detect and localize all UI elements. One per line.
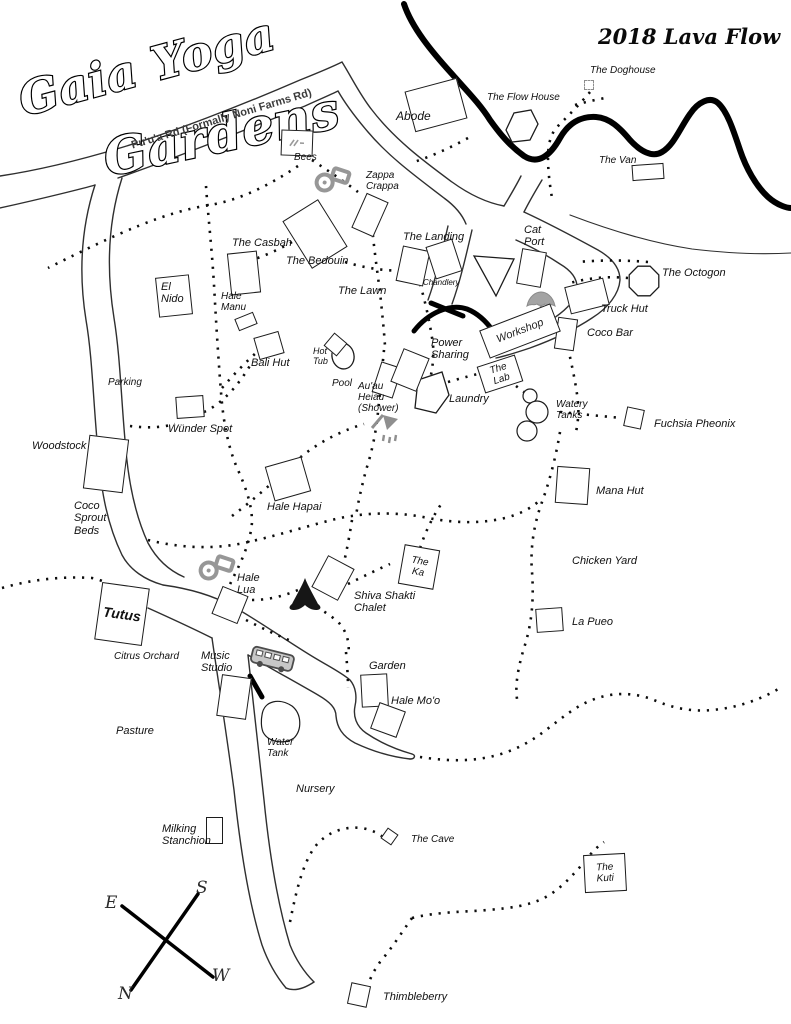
watery-tank-3 [517, 421, 537, 441]
label-hale-hapai: Hale Hapai [267, 501, 321, 513]
label-hale-lua: Hale Lua [237, 572, 260, 597]
label-bees: Bees [294, 152, 317, 163]
trail-west-edge-tutus [2, 577, 116, 590]
label-zappa-crappa: Zappa Crappa [366, 170, 399, 192]
bee-icon [288, 138, 306, 149]
compass-line-sn [131, 894, 198, 990]
label-hale-moo: Hale Mo'o [391, 695, 440, 707]
trail-kuti [412, 842, 604, 918]
garden-box [360, 673, 389, 707]
label-nursery: Nursery [296, 783, 335, 795]
trail-bottom-horizontal [420, 688, 780, 760]
trail-thimbleberry [370, 918, 412, 980]
la-pueo-box [535, 607, 564, 633]
label-pool: Pool [332, 378, 352, 389]
label-shiva-shakti: Shiva Shakti Chalet [354, 590, 415, 615]
trail-doghouse-east [575, 98, 605, 105]
label-chicken-yard: Chicken Yard [572, 555, 637, 567]
label-van: The Van [599, 155, 636, 166]
label-parking: Parking [108, 377, 142, 388]
tutus-label: Tutus [102, 603, 142, 624]
label-octogon: The Octogon [662, 267, 726, 279]
label-pasture: Pasture [116, 725, 154, 737]
puua-road-lower-edge-a [0, 185, 95, 208]
trail-network [2, 92, 780, 980]
label-casbah: The Casbah [232, 237, 292, 249]
toilet-icon-zappa [315, 164, 350, 197]
label-thimbleberry: Thimbleberry [383, 991, 447, 1003]
bus-icon [249, 646, 294, 675]
label-auau-heiau: Au'au Heiau (Shower) [358, 381, 399, 415]
toilet-icon-hale-lua [199, 552, 234, 585]
trail-garden-vertical [346, 652, 348, 688]
tutus-box: Tutus [94, 582, 150, 646]
label-doghouse: The Doghouse [590, 65, 656, 76]
label-bali-hut: Bali Hut [251, 357, 290, 369]
map-drawing-layer: Gaia Yoga Gardens [0, 0, 791, 1024]
trail-wunder-to-bali [204, 362, 252, 412]
label-coco-bar: Coco Bar [587, 327, 633, 339]
east-boundary-line [570, 215, 791, 254]
trail-big-south-loop [148, 500, 540, 547]
label-bedouin: The Bedouin [286, 255, 348, 267]
label-el-nido: El Nido [161, 281, 184, 306]
trail-chickenyard-vertical [516, 432, 560, 704]
central-road-south-edge-a [148, 608, 212, 638]
compass-letter-e: E [105, 893, 117, 913]
woodstock-box [83, 435, 129, 493]
label-truck-hut: Truck Hut [601, 303, 648, 315]
kuti-box: The Kuti [583, 853, 627, 893]
label-hale-manu: Hale Manu [221, 291, 246, 313]
label-cave: The Cave [411, 834, 454, 845]
label-chandlery: Chandlery [423, 279, 459, 288]
compass-letter-n: N [118, 984, 133, 1004]
trail-cave-loop [290, 828, 384, 922]
label-flow-house: The Flow House [487, 92, 560, 103]
label-lawn: The Lawn [338, 285, 386, 297]
label-woodstock: Woodstock [32, 440, 86, 452]
trail-ka-north [420, 500, 444, 548]
label-watery-tanks: Watery Tanks [556, 399, 588, 421]
label-garden: Garden [369, 660, 406, 672]
kuti-label: The Kuti [596, 862, 614, 885]
trail-shiva-to-garden [300, 600, 349, 656]
gaia-yoga-gardens-map: Gaia Yoga Gardens Workshop The Lab The K… [0, 0, 791, 1024]
octogon-shape [629, 266, 659, 296]
compass-letter-w: W [212, 966, 229, 986]
label-mana-hut: Mana Hut [596, 485, 644, 497]
the-ka-box: The Ka [398, 544, 440, 590]
road-network [0, 62, 791, 990]
trail-lua-southeast [246, 620, 294, 642]
label-citrus-orchard: Citrus Orchard [114, 651, 179, 662]
label-abode: Abode [396, 110, 431, 123]
lava-stub-edge-b [524, 180, 542, 212]
mana-hut-box [555, 466, 591, 505]
label-laundry: Laundry [449, 393, 489, 405]
label-wunder-spot: Wünder Spot [168, 423, 232, 435]
label-la-pueo: La Pueo [572, 616, 613, 628]
central-road-deadend-cap [410, 754, 414, 759]
compass-line-es [122, 906, 213, 977]
casbah-box [227, 251, 261, 296]
trail-bees-west [48, 166, 298, 268]
label-landing: The Landing [403, 231, 464, 243]
lava-stub-edge-a [504, 176, 521, 206]
label-milking-stanchion: Milking Stanchion [162, 823, 211, 848]
shower-icon [372, 415, 398, 443]
compass-letter-s: S [196, 878, 208, 898]
label-power-sharing: Power Sharing [431, 337, 469, 362]
south-road-end-cap [286, 982, 314, 990]
the-lab-label: The Lab [488, 361, 511, 387]
label-coco-sprout-beds: Coco Sprout Beds [74, 500, 106, 537]
flow-house-shape [506, 110, 538, 142]
music-studio-box [216, 674, 252, 720]
label-cat-port: Cat Port [524, 224, 544, 249]
doghouse-box [584, 80, 594, 90]
label-fuchsia-pheonix: Fuchsia Pheonix [654, 418, 735, 430]
watery-tank-2 [526, 401, 548, 423]
label-music-studio: Music Studio [201, 650, 232, 675]
water-tank-shape [261, 701, 299, 741]
lava-flow-label: 2018 Lava Flow [598, 24, 780, 49]
junction-triangle-island [474, 256, 514, 296]
label-hot-tub: Hot Tub [313, 346, 328, 366]
compass [122, 894, 213, 990]
wunder-spot-box [175, 395, 204, 419]
label-water-tank: Water Tank [267, 737, 294, 759]
the-ka-label: The Ka [409, 555, 430, 580]
